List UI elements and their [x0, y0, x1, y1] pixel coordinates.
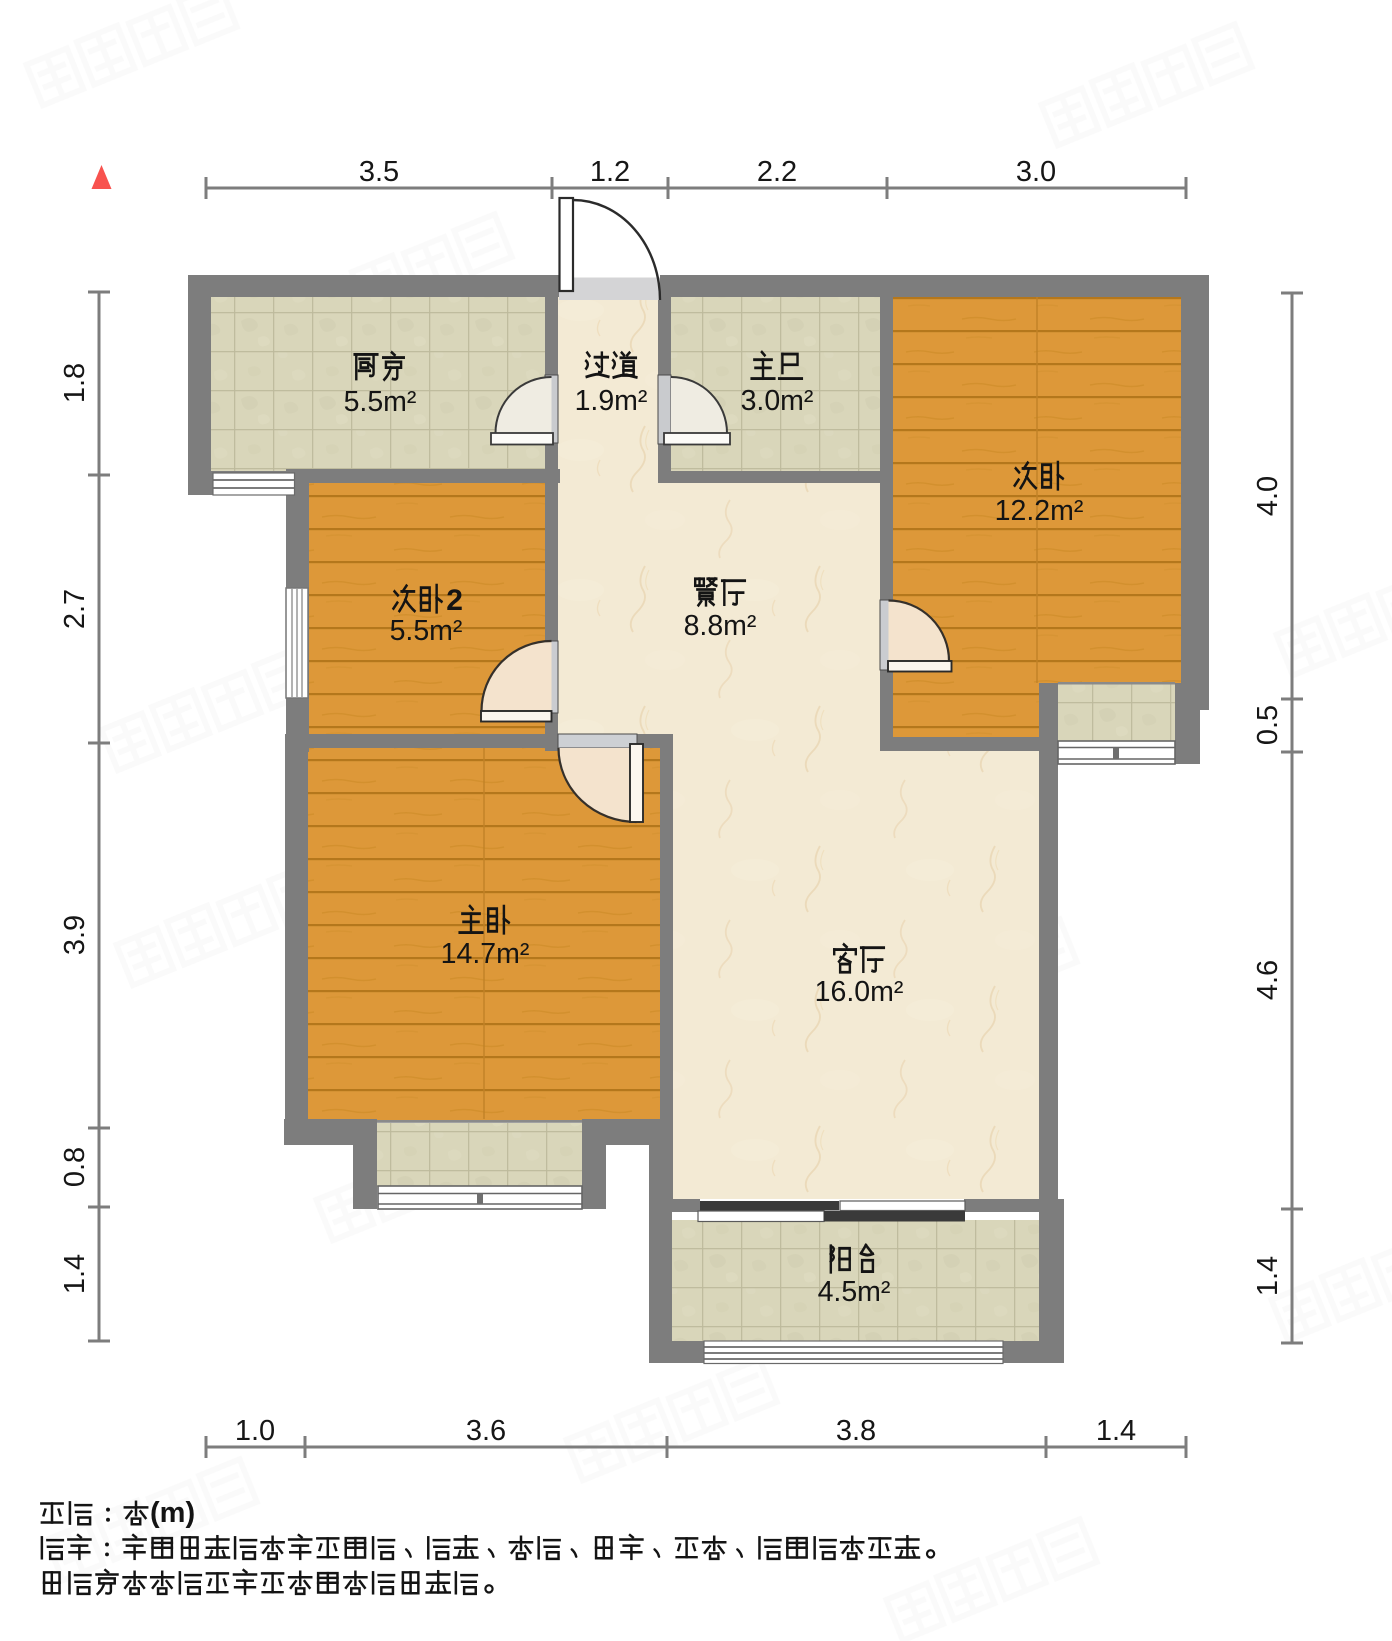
svg-text:1.8: 1.8: [59, 363, 91, 403]
svg-text:1.4: 1.4: [1252, 1256, 1284, 1296]
svg-text:4.0: 4.0: [1252, 476, 1284, 516]
svg-text:2: 2: [446, 584, 463, 617]
svg-text:0.5: 0.5: [1252, 705, 1284, 745]
svg-text:4.6: 4.6: [1252, 960, 1284, 1000]
svg-text:16.0m²: 16.0m²: [815, 976, 904, 1008]
svg-text:1.0: 1.0: [235, 1415, 275, 1447]
svg-text:3.9: 3.9: [59, 915, 91, 955]
svg-text:8.8m²: 8.8m²: [684, 610, 757, 642]
svg-text:(m): (m): [150, 1497, 195, 1529]
svg-text:2.7: 2.7: [59, 589, 91, 629]
svg-text:2.2: 2.2: [757, 156, 797, 188]
svg-text:1.9m²: 1.9m²: [575, 385, 648, 417]
svg-text:5.5m²: 5.5m²: [390, 615, 463, 647]
svg-text:4.5m²: 4.5m²: [818, 1276, 891, 1308]
svg-text:1.4: 1.4: [59, 1254, 91, 1294]
svg-text:1.4: 1.4: [1096, 1415, 1136, 1447]
svg-text:14.7m²: 14.7m²: [441, 938, 530, 970]
svg-text:3.6: 3.6: [466, 1415, 506, 1447]
svg-text:0.8: 0.8: [59, 1147, 91, 1187]
svg-text:3.5: 3.5: [359, 156, 399, 188]
svg-text:1.2: 1.2: [590, 156, 630, 188]
svg-text:3.8: 3.8: [836, 1415, 876, 1447]
svg-text:5.5m²: 5.5m²: [344, 386, 417, 418]
svg-text:3.0: 3.0: [1016, 156, 1056, 188]
svg-text:3.0m²: 3.0m²: [741, 385, 814, 417]
svg-text:12.2m²: 12.2m²: [995, 495, 1084, 527]
